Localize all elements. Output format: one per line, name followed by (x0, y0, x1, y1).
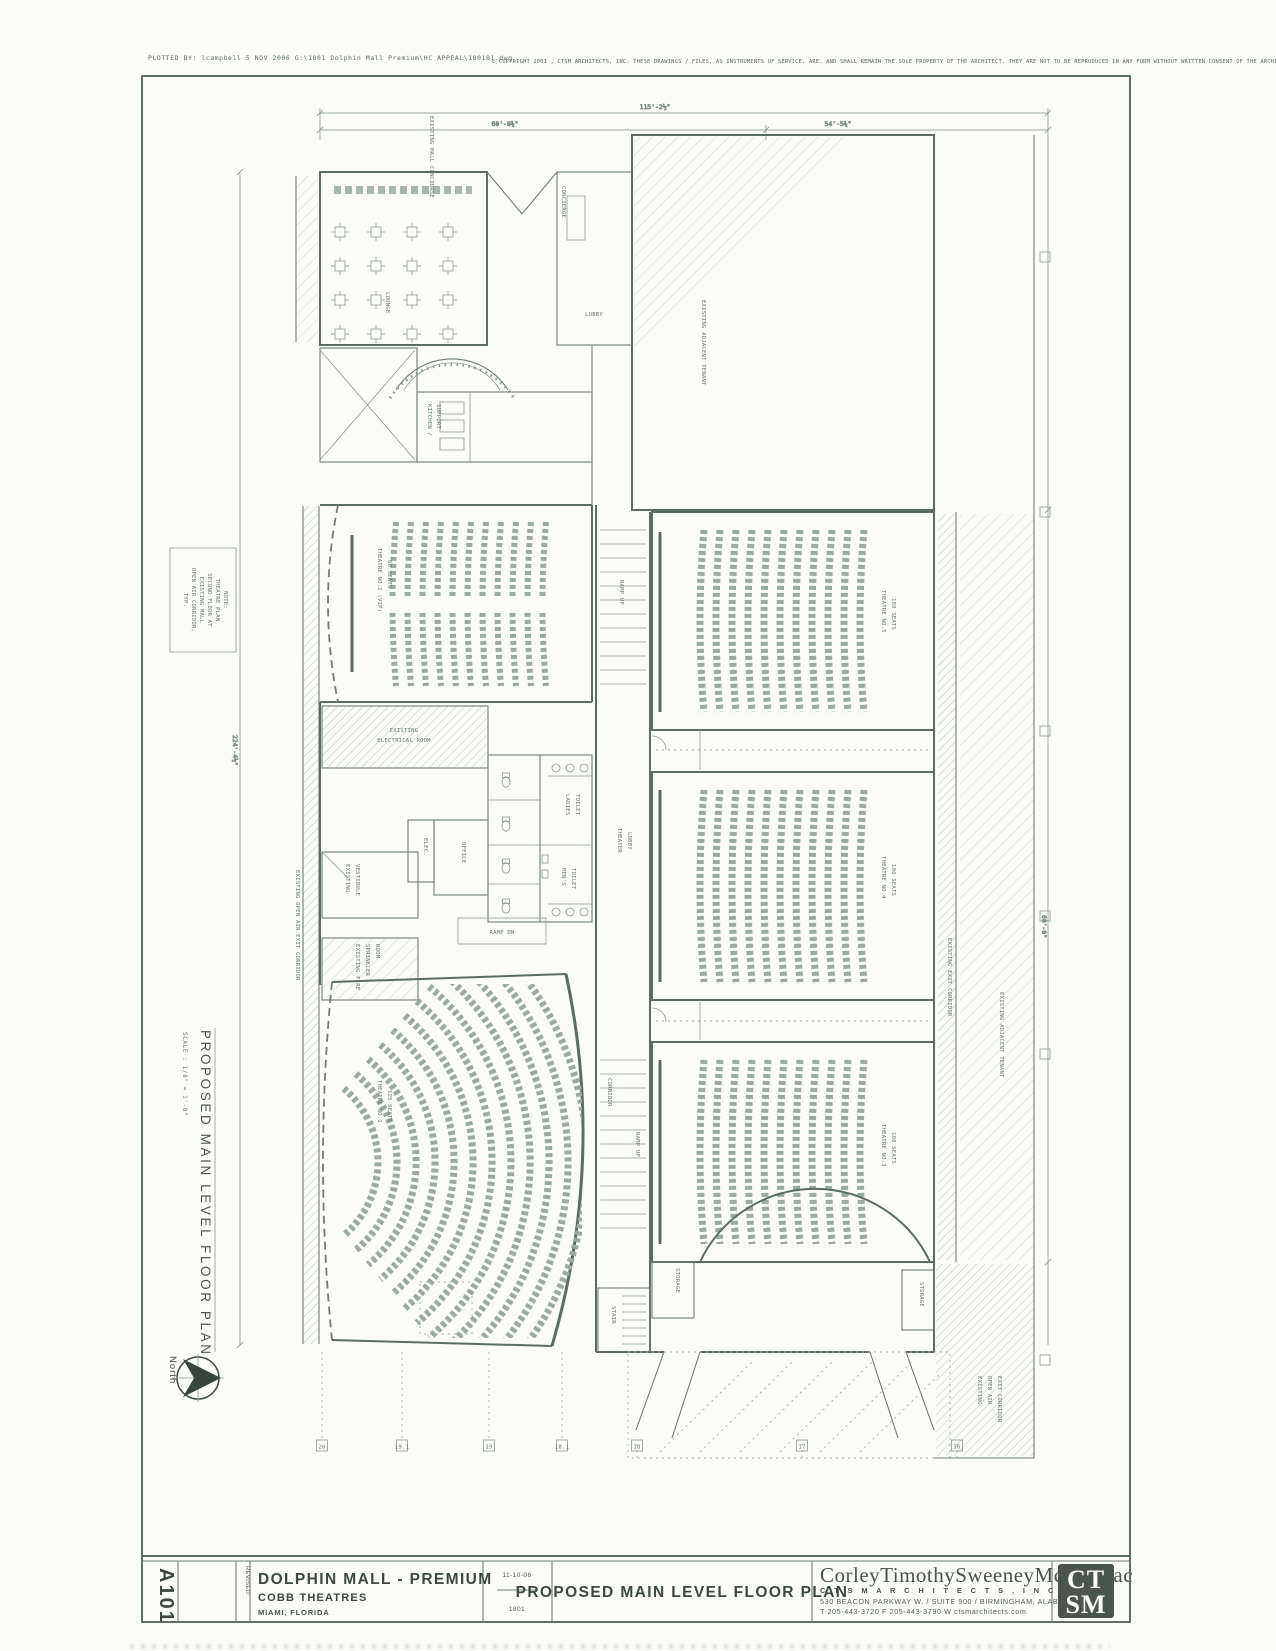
theatre-corridor-upper (652, 730, 930, 770)
label-ex-oa-3: EXIT CORRIDOR (996, 1376, 1002, 1423)
label-ladies-2: TOILET (574, 794, 580, 816)
entry-lobby: CONCIERGE LOBBY (487, 172, 632, 345)
dining-tables (331, 223, 457, 343)
grid-tag: 18.1 (555, 1445, 569, 1451)
label-theatre-3: THEATRE NO.3 (880, 1124, 886, 1167)
label-ex-elec-1: EXISTING (390, 728, 419, 734)
ctsm-logo: CT SM (1058, 1564, 1114, 1619)
label-storage-left: STORAGE (674, 1268, 680, 1293)
scan-noise (130, 1644, 1110, 1649)
north-label: North (167, 1356, 178, 1384)
theatre-4: THEATRE NO.4 180 SEATS (652, 772, 934, 1000)
margin-drawing-title: PROPOSED MAIN LEVEL FLOOR PLAN (198, 1030, 213, 1357)
lounge-dining-area: EXISTING MALL CONCOURSE LOUNGE (296, 116, 487, 345)
label-adjacent-tenant-top: EXISTING ADJACENT TENANT (700, 300, 706, 386)
label-theatre-5: THEATRE NO.5 (880, 590, 886, 633)
theatre-3-seating (700, 1060, 864, 1244)
label-theatre-4: THEATRE NO.4 (880, 856, 886, 899)
theatre-5-seating (700, 530, 864, 712)
ramp-up-top: RAMP UP (600, 530, 646, 684)
revised-label: REVISED: (244, 1566, 250, 1596)
label-adjacent-tenant-right: EXISTING ADJACENT TENANT (998, 992, 1004, 1078)
grid-tag: 19 (485, 1445, 492, 1451)
toilet-core: LADIES TOILET MEN'S TOILET (488, 755, 592, 922)
label-theatre-2: THEATRE NO.2 (VIP) (376, 548, 382, 612)
floor-plan-drawing: PLOTTED BY: lcampbell 5 NOV 2006 G:\1801… (0, 0, 1276, 1651)
job-number: 1801 (509, 1606, 525, 1613)
label-ex-open-air-left: EXISTING OPEN AIR EXIT CORRIDOR (294, 870, 300, 981)
label-theater-lobby-2: LOBBY (626, 832, 632, 850)
copyright-note: © COPYRIGHT 2001 , CTSM ARCHITECTS, INC.… (492, 59, 1276, 65)
label-theater-lobby-1: THEATER (616, 828, 622, 853)
label-ramp-dn: RAMP DN (490, 930, 515, 936)
label-ex-fire-2: SPRINKLER (364, 944, 370, 977)
label-stair: STAIR (610, 1306, 616, 1324)
label-ex-fire-1: EXISTING FIRE (354, 944, 360, 991)
label-storage-right: STORAGE (918, 1282, 924, 1307)
grid-tag: 20 (318, 1445, 325, 1451)
grid-tag: 18 (633, 1445, 641, 1451)
svg-text:NOTE:: NOTE: (222, 591, 228, 609)
ctsm-logo-bottom: SM (1066, 1590, 1107, 1619)
label-ex-exit-corridor: EXISTING EXIT CORRIDOR (946, 938, 952, 1017)
dim-overall: 115'-2½" (640, 103, 671, 111)
dim-left-segment: 60'-8¾" (492, 120, 519, 128)
note-box: NOTE: THEATRE PLAN SECOND FLOOR AT EXIST… (170, 548, 236, 652)
label-corridor: CORRIDOR (606, 1078, 612, 1107)
label-mens-2: TOILET (570, 868, 576, 890)
svg-text:EXISTING MALL: EXISTING MALL (198, 577, 204, 624)
label-lobby: LOBBY (585, 312, 603, 318)
label-kitchen-2: SUPPORT (435, 404, 441, 429)
svg-text:TYP.: TYP. (182, 593, 188, 607)
dim-left-height: 224'-4½" (231, 735, 239, 766)
sheet-number: A101 (155, 1568, 177, 1624)
sheet-title: PROPOSED MAIN LEVEL FLOOR PLAN (516, 1584, 849, 1601)
margin-scale: SCALE : 1/8" = 1'-0" (181, 1032, 188, 1116)
dim-right-segment: 54'-5¾" (825, 120, 852, 128)
theatre-4-seating (700, 790, 864, 982)
label-kitchen-1: KITCHEN / (426, 404, 432, 436)
note-text: NOTE: THEATRE PLAN SECOND FLOOR AT EXIST… (182, 568, 228, 632)
label-ex-vest-2: VESTIBULE (354, 864, 360, 897)
existing-rooms-left: EXISTING ELECTRICAL ROOM EXISTING VESTIB… (294, 506, 546, 1344)
label-ex-oa-1: EXISTING (976, 1376, 982, 1405)
theatre-1: THEATRE NO.1 125 SEATS (320, 702, 587, 1396)
label-concierge: CONCIERGE (560, 186, 566, 219)
label-elec: ELEC. (422, 838, 428, 856)
label-lounge: LOUNGE (384, 292, 390, 314)
label-theatre-1-seats: 125 SEATS (386, 1090, 392, 1122)
central-corridor: RAMP UP THEATER LOBBY CORRIDOR RAMP UP (596, 505, 650, 1352)
grid-tag: 16 (953, 1445, 960, 1451)
project-name: DOLPHIN MALL - PREMIUM (258, 1571, 493, 1588)
ramp-up-bottom: CORRIDOR RAMP UP (600, 1060, 646, 1228)
label-ex-vest-1: EXISTING (344, 864, 350, 893)
svg-text:THEATRE PLAN: THEATRE PLAN (214, 579, 220, 622)
svg-text:OPEN AIR CORRIDOR,: OPEN AIR CORRIDOR, (190, 568, 196, 632)
label-mall-concourse: EXISTING MALL CONCOURSE (428, 116, 434, 198)
dim-right-height: 60'-0" (1040, 915, 1048, 938)
office-elec: ELEC. OFFICE (408, 820, 488, 895)
theatre-2-seating (378, 522, 562, 686)
label-mens-1: MEN'S (560, 868, 566, 886)
label-ex-elec-2: ELECTRICAL ROOM (377, 738, 431, 744)
concession-kitchen: KITCHEN / SUPPORT (320, 345, 592, 505)
grid-tag: 17 (798, 1445, 805, 1451)
issue-date: 11-10-06 (502, 1572, 531, 1579)
label-ex-fire-3: ROOM (374, 944, 380, 959)
firm-subtitle: C T S M A R C H I T E C T S , I N C . (820, 1586, 1068, 1595)
theatre-3: THEATRE NO.3 180 SEATS (652, 1042, 934, 1262)
scanned-sheet: PLOTTED BY: lcampbell 5 NOV 2006 G:\1801… (0, 0, 1276, 1651)
svg-text:SECOND FLOOR AT: SECOND FLOOR AT (206, 573, 212, 627)
label-theatre-5-seats: 180 SEATS (890, 598, 896, 630)
project-location: MIAMI, FLORIDA (258, 1608, 330, 1617)
grid-tag: 19.1 (395, 1445, 409, 1451)
theatre-corridor-lower (652, 1002, 930, 1040)
label-theatre-1: THEATRE NO.1 (376, 1080, 382, 1123)
client-name: COBB THEATRES (258, 1592, 368, 1604)
theatre-5: THEATRE NO.5 180 SEATS (652, 512, 934, 730)
label-ex-oa-2: OPEN AIR (986, 1376, 992, 1405)
stair: STAIR (598, 1288, 650, 1352)
label-theatre-2-seats: 60 SEATS (386, 560, 392, 589)
plot-header: PLOTTED BY: lcampbell 5 NOV 2006 G:\1801… (148, 54, 513, 62)
north-arrow: North (167, 1354, 224, 1402)
label-ramp-up-bottom: RAMP UP (634, 1132, 640, 1157)
label-ladies-1: LADIES (564, 794, 570, 815)
label-theatre-3-seats: 180 SEATS (890, 1132, 896, 1164)
label-ramp-up-top: RAMP UP (618, 580, 624, 605)
firm-contact: T 205-443-3720 F 205-443-3790 W ctsmarch… (820, 1607, 1026, 1616)
title-block: A101 REVISED: DOLPHIN MALL - PREMIUM COB… (155, 1563, 1133, 1624)
margin-column: NOTE: THEATRE PLAN SECOND FLOOR AT EXIST… (167, 548, 236, 1402)
label-office: OFFICE (460, 842, 466, 864)
theatre-2: THEATRE NO.2 (VIP) 60 SEATS (320, 505, 592, 702)
label-theatre-4-seats: 180 SEATS (890, 864, 896, 896)
